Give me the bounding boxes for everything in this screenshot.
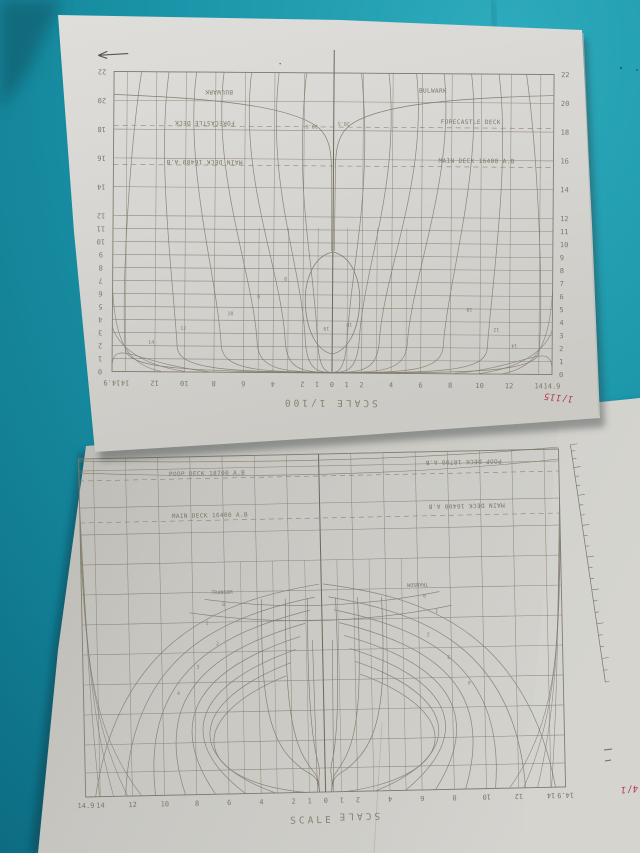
waterline-number-right: 8	[560, 267, 564, 275]
station-number-right: 8	[448, 382, 452, 390]
waterline-number-right: 2	[559, 345, 563, 353]
curve-annotation: 10	[227, 311, 233, 317]
photo-lines-plan-scene: POOP DECK 18700 A.B POOP DECK 18700 A.B …	[0, 0, 640, 853]
waterline-number-right: 3	[559, 332, 563, 340]
waterline-number-right: 14	[560, 186, 568, 194]
curve-annotation: 10	[466, 306, 472, 312]
station-number-right: 12	[505, 382, 513, 390]
red-annotation-bottom: 4/1	[620, 783, 639, 795]
curve-annotation: 1	[205, 620, 208, 626]
waterline-number-right: 1	[559, 358, 563, 366]
top-main-deck-label: MAIN DECK 16400 A.B	[438, 158, 514, 166]
waterline-number-left: 9	[99, 250, 103, 258]
station-number-left: 8	[212, 379, 216, 387]
waterline-number-left: 14	[97, 183, 105, 191]
top-sheet: BULWARK BULWARK FORECASTLE DECK FORECAST…	[58, 15, 600, 452]
curve-annotation: 0	[423, 592, 426, 598]
station-number-right: 14	[547, 791, 556, 799]
curve-annotation: 20.5	[306, 123, 318, 129]
station-number-right: 14	[534, 382, 542, 390]
curve-annotation: 4	[177, 691, 180, 697]
pencil-dot	[279, 63, 281, 65]
waterline-number-left: 10	[97, 237, 105, 245]
curve-annotation: 12	[493, 326, 499, 332]
station-number-left: 14	[121, 379, 129, 387]
waterline-number-left: 4	[98, 315, 102, 323]
station-number-left: 12	[150, 379, 158, 387]
station-number-left: 10	[180, 379, 188, 387]
waterline-number-left: 20	[98, 96, 106, 104]
station-number-right: 4	[389, 381, 393, 389]
station-number-right: 1	[345, 381, 349, 389]
curve-annotation: 8	[284, 277, 287, 283]
station-number-right: 4	[388, 795, 392, 803]
transom-label: TRANSOM	[211, 590, 232, 596]
station-number-right: 10	[475, 382, 483, 390]
waterline-number-right: 6	[560, 293, 564, 301]
station-number-right: 6	[418, 382, 422, 390]
station-number-left: 10	[161, 800, 170, 808]
curve-annotation: 12	[180, 326, 186, 332]
station-number-left: 1	[308, 797, 312, 805]
curve-annotation: 19	[323, 325, 329, 331]
forecastle-label: FORECASTLE DECK	[441, 119, 501, 126]
waterline-number-left: 12	[97, 211, 105, 219]
waterline-number-right: 0	[559, 371, 563, 379]
curve-annotation: 14	[148, 340, 154, 346]
station-number-center: 0	[330, 381, 334, 389]
waterline-number-right: 5	[559, 306, 563, 314]
station-number-right: 8	[452, 793, 456, 801]
station-number-left: 4	[271, 380, 275, 388]
waterline-number-left: 7	[99, 276, 103, 284]
curve-annotation: 3	[196, 665, 199, 671]
curve-annotation: 2	[427, 631, 430, 637]
waterline-number-left: 5	[98, 302, 102, 310]
waterline-number-right: 12	[560, 215, 568, 223]
curve-annotation: 9	[257, 294, 260, 300]
station-number-left: 14	[96, 802, 105, 810]
waterline-number-right: 22	[561, 71, 569, 79]
waterline-number-right: 16	[560, 157, 568, 165]
curve-annotation: 0	[222, 602, 225, 608]
station-number-right: 1	[340, 796, 344, 804]
waterline-number-right: 20	[561, 100, 569, 108]
station-number-left: 12	[128, 801, 137, 809]
waterline-number-left: 16	[97, 154, 105, 162]
station-number-left: 14.9	[77, 802, 94, 810]
scale-label-rotated: SCALE	[336, 810, 380, 822]
waterline-number-right: 9	[560, 254, 564, 262]
station-number-left: 4	[259, 798, 263, 806]
fabric-speck	[620, 67, 622, 69]
curve-annotation: 3	[447, 653, 450, 659]
waterline-number-right: 4	[559, 319, 563, 327]
station-number-left: 6	[227, 799, 231, 807]
station-number-left: 6	[241, 379, 245, 387]
station-number-right: 14.9	[557, 791, 574, 799]
station-number-left: 8	[195, 800, 199, 808]
bulwark-label: BULWARK	[419, 88, 447, 95]
waterline-number-left: 22	[98, 67, 106, 75]
station-number-right: 6	[420, 794, 424, 802]
station-number-center: 0	[324, 797, 328, 805]
station-number-left: 14.9	[103, 378, 120, 386]
waterline-number-left: 1	[98, 354, 102, 362]
waterline-number-left: 3	[98, 328, 102, 336]
curve-annotation: 2	[216, 641, 219, 647]
station-number-left: 2	[300, 380, 304, 388]
top-main-deck-label-rotated: MAIN DECK 16400 A.B	[166, 158, 242, 166]
waterline-number-right: 18	[561, 129, 569, 137]
top-scale-label-rotated: SCALE 1/100	[282, 397, 378, 409]
waterline-number-left: 11	[97, 224, 105, 232]
station-number-right: 12	[515, 792, 524, 800]
waterline-number-right: 7	[560, 280, 564, 288]
waterline-number-left: 8	[99, 263, 103, 271]
waterline-number-left: 6	[98, 289, 102, 297]
station-number-left: 2	[291, 798, 295, 806]
station-number-right: 2	[359, 381, 363, 389]
fabric-speck	[636, 69, 638, 71]
waterline-number-right: 10	[560, 241, 568, 249]
station-number-left: 1	[315, 380, 319, 388]
scale-label: SCALE	[290, 815, 334, 827]
curve-annotation: 4	[468, 679, 471, 685]
forecastle-label-rotated: FORECASTLE DECK	[175, 119, 235, 126]
bottom-sheet: POOP DECK 18700 A.B POOP DECK 18700 A.B …	[38, 398, 640, 853]
scene-svg: POOP DECK 18700 A.B POOP DECK 18700 A.B …	[0, 0, 640, 853]
waterline-number-left: 18	[97, 125, 105, 133]
station-number-right: 10	[482, 793, 491, 801]
waterline-number-left: 0	[98, 367, 102, 375]
station-number-right: 2	[356, 795, 360, 803]
station-number-right: 14.9	[544, 382, 561, 390]
curve-annotation: 14	[511, 342, 517, 348]
bulwark-label-rotated: BULWARK	[205, 88, 233, 95]
curve-annotation: 20.5	[338, 120, 350, 126]
curve-annotation: 1	[435, 608, 438, 614]
waterline-number-left: 2	[98, 341, 102, 349]
waterline-number-right: 11	[560, 228, 568, 236]
curve-annotation: 19	[346, 321, 352, 327]
